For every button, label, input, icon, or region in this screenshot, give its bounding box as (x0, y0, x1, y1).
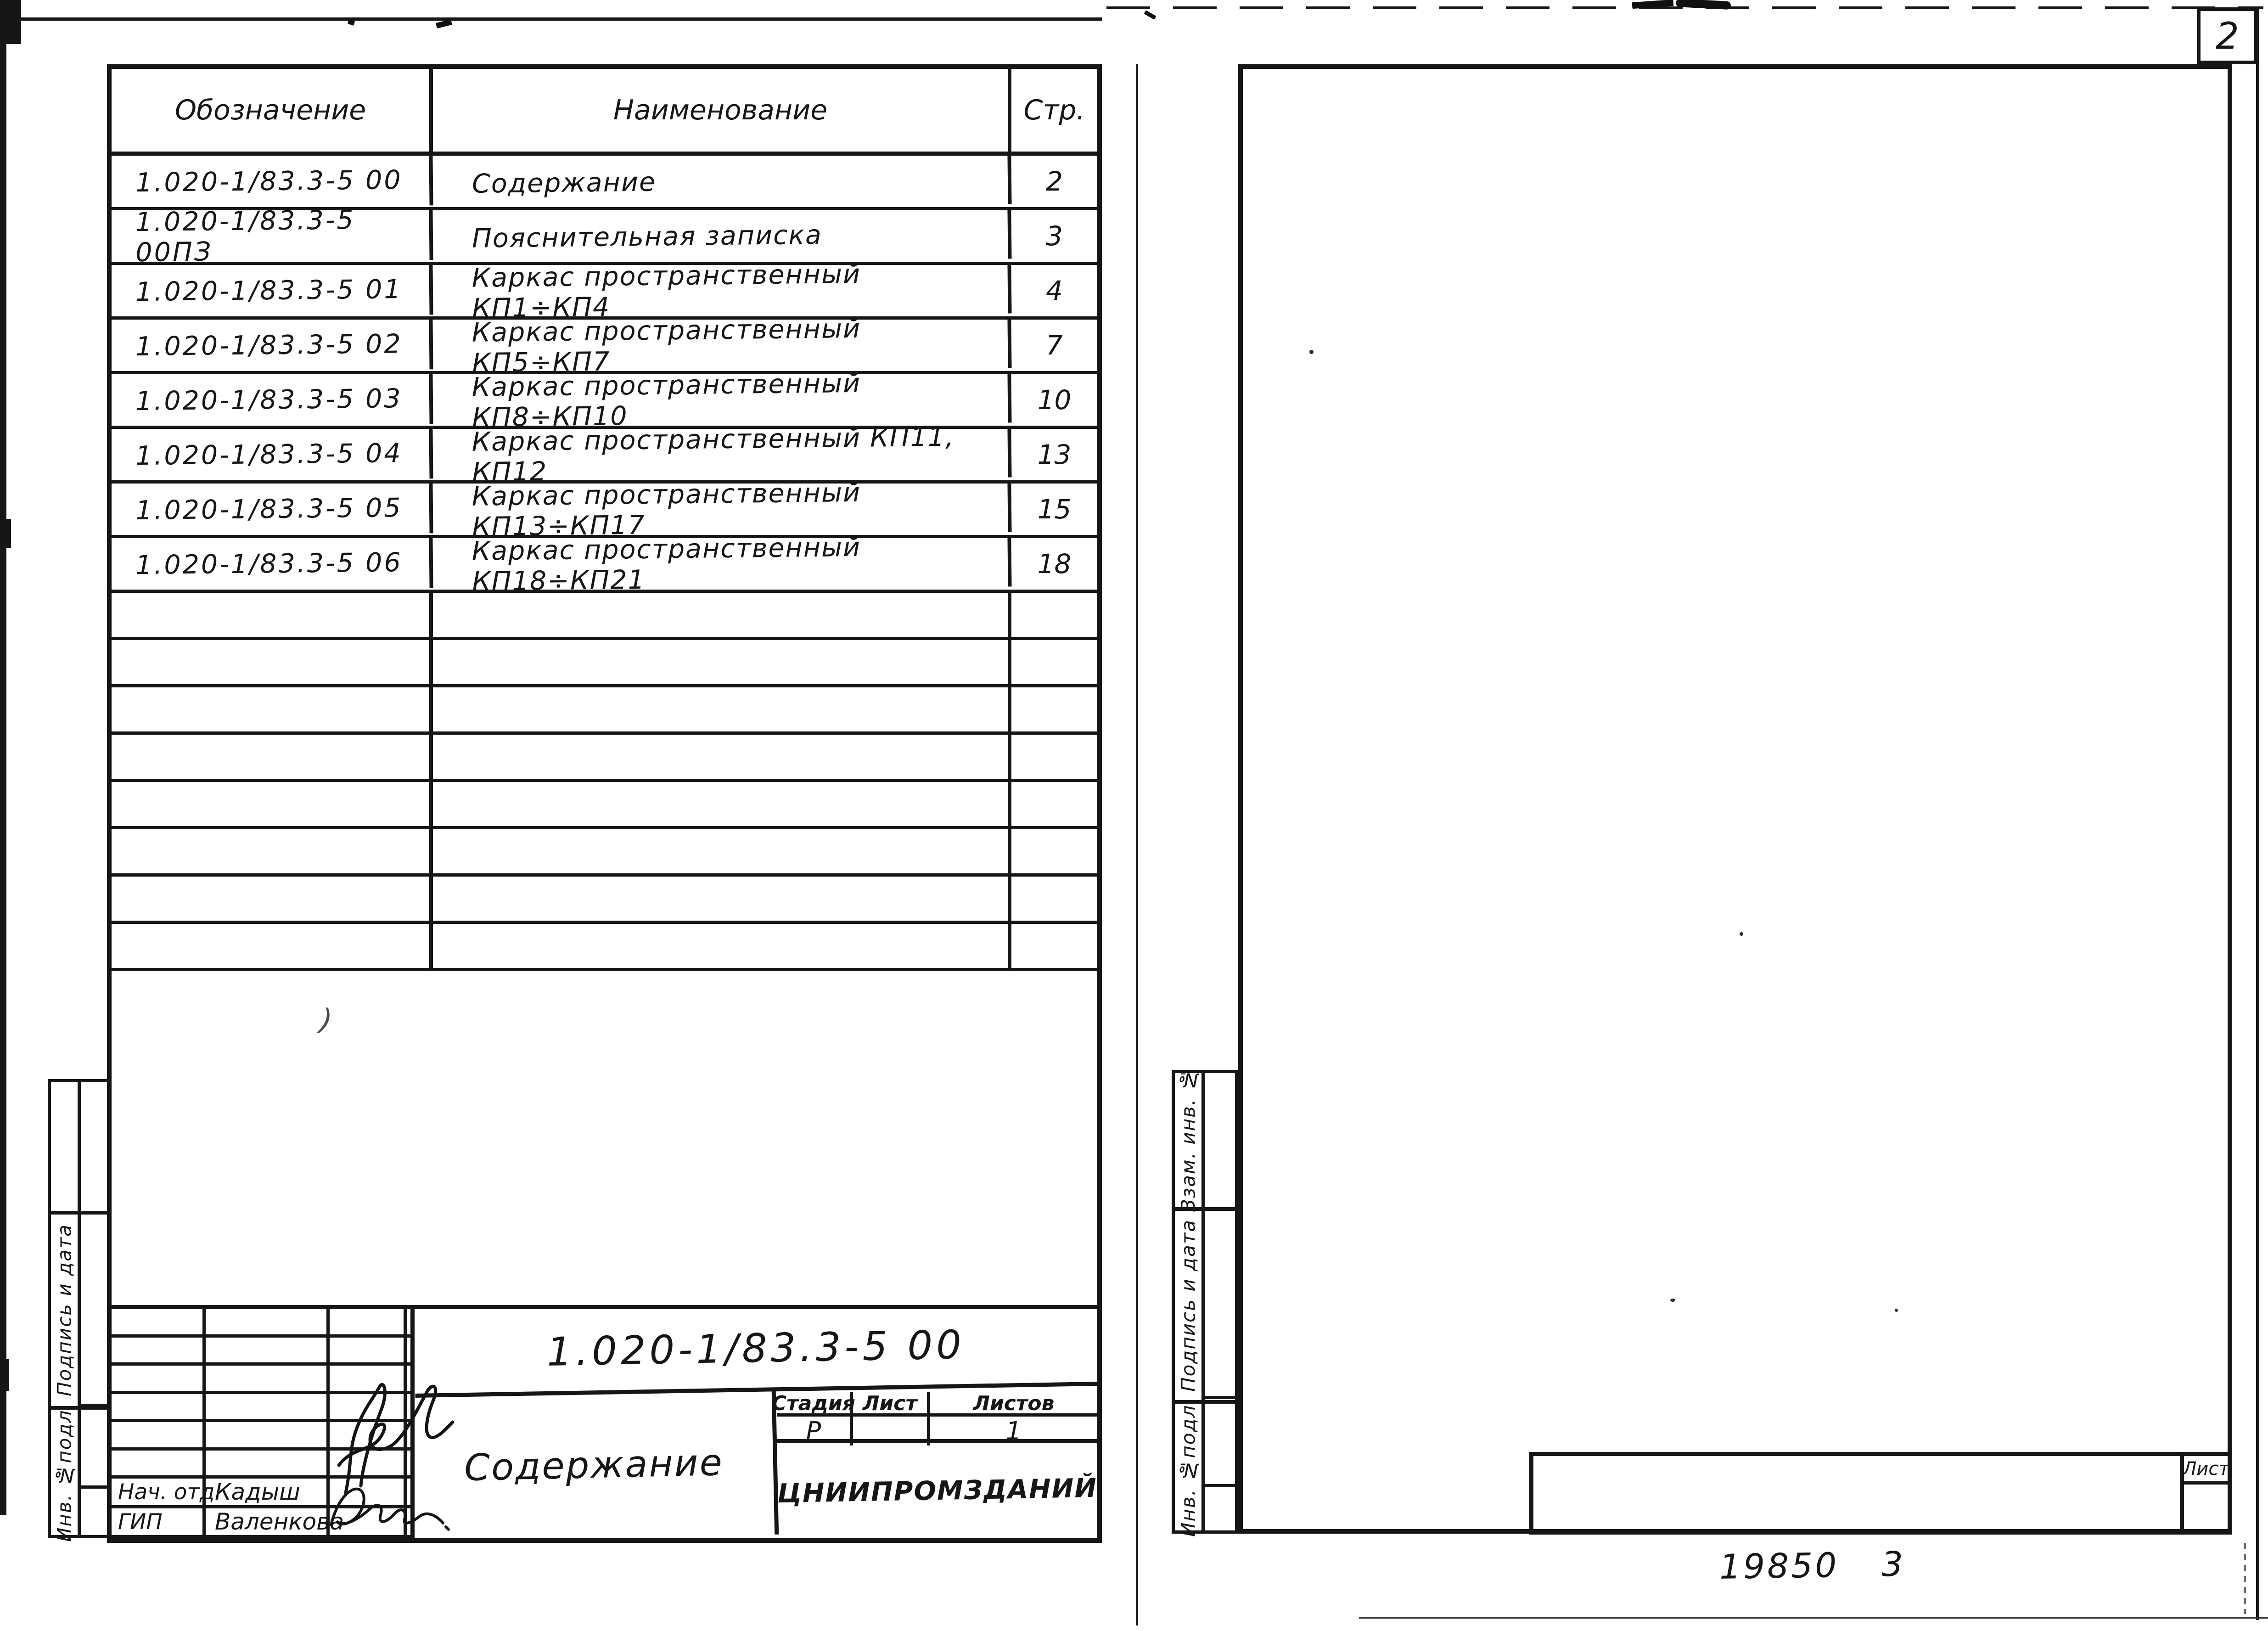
scan-scribble (1144, 10, 1156, 20)
table-row-empty (112, 924, 1097, 971)
strip-label-inventory-number: Инв. №подл. (1175, 1404, 1201, 1530)
footer-stamp-outline: Лист (1529, 1452, 2232, 1535)
title-block-signature-grid: Нач. отд. Кадыш ГИП Валенкова (112, 1309, 415, 1538)
right-page-outer-rule (2256, 6, 2259, 1620)
row-page: 10 (1011, 374, 1097, 426)
strip-subdivider (1205, 1396, 1235, 1399)
archive-sheet-number: 3 (1881, 1545, 1905, 1585)
strip-cell: Подпись и дата (51, 1215, 108, 1410)
left-page-frame: Обозначение Наименование Стр. 1.020-1/83… (107, 64, 1102, 1543)
page-number-box: 2 (2197, 7, 2258, 64)
toc-header-designation: Обозначение (112, 69, 433, 152)
scan-speck (436, 19, 452, 28)
row-designation: 1.020-1/83.3-5 00ПЗ (111, 208, 433, 263)
toc-header-row: Обозначение Наименование Стр. (112, 69, 1097, 156)
strip-label-signature-date: Подпись и дата (1175, 1211, 1201, 1400)
table-row-empty (112, 593, 1097, 640)
right-page-frame (1238, 64, 2232, 1534)
stage-box: Стадия Лист Листов Р 1 ЦНИИПРОМЗДАНИЙ (777, 1392, 1097, 1538)
sheet-cell: Лист (2184, 1456, 2228, 1485)
sheets-label: Листов (930, 1392, 1097, 1415)
signature-row: ГИП Валенкова (112, 1508, 410, 1538)
row-name: Каркас пространственный КП5÷КП7 (432, 316, 1011, 374)
sig-role: Нач. отд. (112, 1479, 206, 1505)
archive-number: 19850 (1719, 1546, 1839, 1587)
title-block-right: 1.020-1/83.3-5 00 Содержание Стадия Лист… (415, 1309, 1097, 1538)
row-designation: 1.020-1/83.3-5 00 (111, 154, 433, 208)
row-name: Каркас пространственный КП13÷КП17 (432, 480, 1011, 538)
table-row: 1.020-1/83.3-5 00 Содержание 2 (112, 156, 1097, 210)
sheet-value (853, 1417, 930, 1445)
strip-label-inventory-number: Инв. №подл. (51, 1410, 78, 1535)
row-designation: 1.020-1/83.3-5 06 (111, 536, 433, 591)
table-row-empty (112, 877, 1097, 924)
signature-row: Нач. отд. Кадыш (112, 1479, 410, 1508)
strip-label (51, 1082, 78, 1211)
organization-name: ЦНИИПРОМЗДАНИЙ (776, 1440, 1098, 1541)
row-page: 4 (1011, 265, 1097, 316)
strip-cell: Подпись и дата (1175, 1211, 1235, 1404)
table-row: 1.020-1/83.3-5 03 Каркас пространственны… (112, 374, 1097, 429)
toc-header-name: Наименование (433, 69, 1011, 152)
row-page: 7 (1011, 320, 1097, 371)
strip-subdivider (78, 1485, 108, 1489)
sig-name: Кадыш (206, 1479, 330, 1505)
stray-ink-mark: ) (318, 1003, 334, 1038)
sig-name: Валенкова (206, 1508, 330, 1535)
document-title: Содержание (413, 1388, 779, 1542)
row-name: Содержание (432, 152, 1011, 210)
strip-label-signature-date: Подпись и дата (51, 1215, 78, 1406)
scanned-document: Обозначение Наименование Стр. 1.020-1/83… (0, 0, 2268, 1631)
table-row-empty (112, 640, 1097, 687)
row-name: Каркас пространственный КП8÷КП10 (432, 371, 1011, 428)
row-name: Каркас пространственный КП1÷КП4 (432, 262, 1011, 319)
row-name: Каркас пространственный КП11, КП12 (432, 426, 1011, 483)
strip-cell (51, 1082, 108, 1215)
strip-cell: Взам. инв. № (1175, 1073, 1235, 1211)
table-row: 1.020-1/83.3-5 04 Каркас пространственны… (112, 429, 1097, 484)
title-block: Нач. отд. Кадыш ГИП Валенкова 1 (112, 1305, 1097, 1538)
blank-band: ) (112, 971, 1097, 1305)
row-designation: 1.020-1/83.3-5 02 (111, 318, 433, 372)
table-row: 1.020-1/83.3-5 02 Каркас пространственны… (112, 320, 1097, 374)
stage-value: Р (777, 1417, 853, 1445)
page-number: 2 (2216, 15, 2239, 57)
scan-left-edge (0, 0, 6, 1515)
strip-cell: Инв. №подл. (1175, 1404, 1235, 1530)
row-designation: 1.020-1/83.3-5 04 (111, 427, 433, 482)
strip-subdivider (1205, 1484, 1235, 1487)
row-name: Каркас пространственный КП18÷КП21 (432, 535, 1011, 592)
sheet-label: Лист (853, 1392, 930, 1415)
sig-role: ГИП (112, 1508, 206, 1535)
row-page: 2 (1011, 156, 1097, 207)
table-row-empty (112, 735, 1097, 782)
table-row: 1.020-1/83.3-5 05 Каркас пространственны… (112, 484, 1097, 538)
scan-edge-bump (0, 1359, 9, 1391)
row-page: 3 (1011, 210, 1097, 262)
margin-microtext-mark (2244, 1543, 2246, 1614)
stage-value-row: Р 1 (777, 1417, 1097, 1443)
left-page-top-rule (4, 17, 1102, 21)
scan-corner-blob (0, 0, 21, 44)
table-row-empty (112, 782, 1097, 829)
table-row: 1.020-1/83.3-5 01 Каркас пространственны… (112, 265, 1097, 320)
row-page: 15 (1011, 484, 1097, 535)
row-designation: 1.020-1/83.3-5 05 (111, 482, 433, 536)
scan-edge-bump (0, 519, 11, 548)
row-name: Пояснительная записка (432, 207, 1011, 264)
table-row-empty (112, 829, 1097, 877)
row-page: 13 (1011, 429, 1097, 480)
document-number: 1.020-1/83.3-5 00 (414, 1303, 1098, 1398)
page-seam-line (1136, 64, 1138, 1625)
sheet-cell-label: Лист (2183, 1458, 2229, 1479)
right-margin-strip: Взам. инв. № Подпись и дата Инв. №подл. (1172, 1070, 1238, 1534)
row-designation: 1.020-1/83.3-5 03 (111, 372, 433, 427)
strip-label-replacement-inv: Взам. инв. № (1175, 1073, 1201, 1207)
strip-subdivider (78, 1404, 108, 1407)
table-row-empty (112, 687, 1097, 735)
stage-header-row: Стадия Лист Листов (777, 1392, 1097, 1417)
toc-header-page: Стр. (1011, 69, 1097, 152)
left-margin-strip: Подпись и дата Инв. №подл. (48, 1079, 111, 1538)
stage-label: Стадия (777, 1392, 853, 1415)
row-page: 18 (1011, 538, 1097, 590)
table-row: 1.020-1/83.3-5 00ПЗ Пояснительная записк… (112, 210, 1097, 265)
right-page-bottom-cut (1359, 1617, 2268, 1619)
row-designation: 1.020-1/83.3-5 01 (111, 263, 433, 318)
table-row: 1.020-1/83.3-5 06 Каркас пространственны… (112, 538, 1097, 593)
strip-cell: Инв. №подл. (51, 1410, 108, 1535)
